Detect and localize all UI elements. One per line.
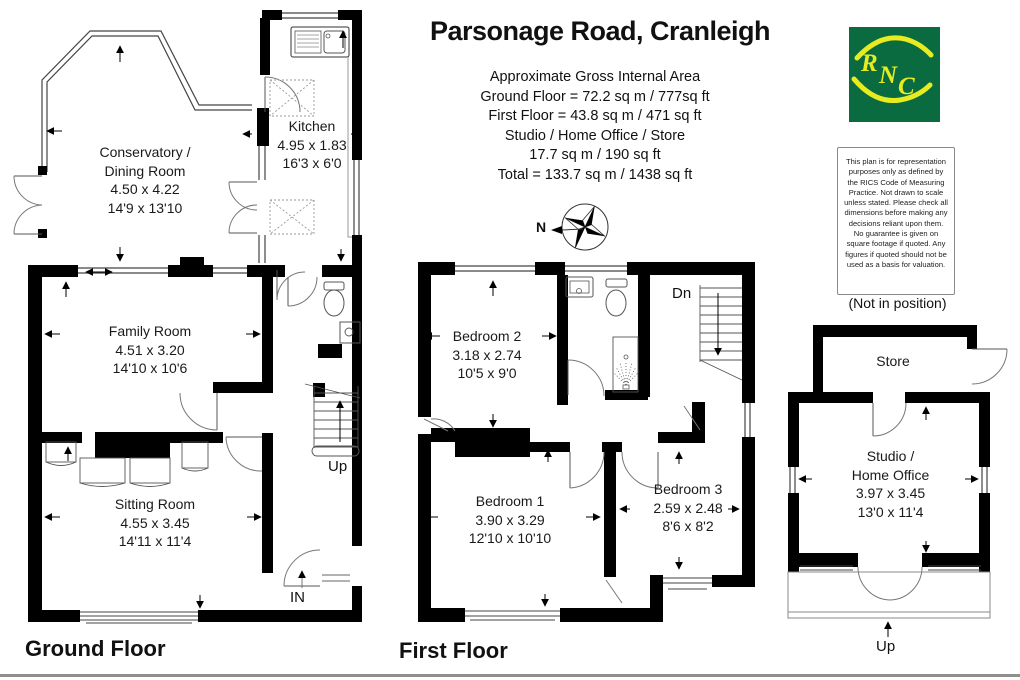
room-name: Home Office: [808, 466, 973, 485]
area-summary: Approximate Gross Internal Area Ground F…: [395, 68, 795, 185]
room-label-kitchen: Kitchen 4.95 x 1.83 16'3 x 6'0: [258, 117, 366, 173]
first-floor-stairs: [700, 285, 742, 380]
room-label-studio: Studio / Home Office 3.97 x 3.45 13'0 x …: [808, 447, 973, 521]
room-label-store: Store: [843, 352, 943, 371]
room-dims-metric: 3.18 x 2.74: [417, 346, 557, 365]
stairs-up-label-studio: Up: [876, 638, 895, 655]
room-label-family-room: Family Room 4.51 x 3.20 14'10 x 10'6: [70, 322, 230, 378]
room-name: Dining Room: [55, 162, 235, 181]
area-line: 17.7 sq m / 190 sq ft: [395, 146, 795, 166]
area-line: Approximate Gross Internal Area: [395, 68, 795, 88]
room-dims-metric: 4.95 x 1.83: [258, 136, 366, 155]
stairs-up-label-ground: Up: [328, 458, 347, 475]
logo-letter-c: C: [898, 73, 915, 100]
room-name: Kitchen: [258, 117, 366, 136]
ground-stairs: [305, 383, 360, 456]
room-name: Bedroom 2: [417, 327, 557, 346]
stairs-dn-label-first: Dn: [672, 285, 691, 302]
first-floor-title: First Floor: [399, 638, 508, 664]
logo-letter-n: N: [878, 62, 898, 89]
room-name: Bedroom 1: [430, 492, 590, 511]
room-name: Conservatory /: [55, 143, 235, 162]
room-dims-imperial: 10'5 x 9'0: [417, 364, 557, 383]
room-dims-imperial: 16'3 x 6'0: [258, 154, 366, 173]
area-line: First Floor = 43.8 sq m / 471 sq ft: [395, 107, 795, 127]
room-dims-metric: 4.50 x 4.22: [55, 180, 235, 199]
room-dims-imperial: 14'10 x 10'6: [70, 359, 230, 378]
room-label-bedroom3: Bedroom 3 2.59 x 2.48 8'6 x 8'2: [618, 480, 758, 536]
wc-fixtures: [277, 270, 360, 358]
floorplan-page: R N C Parsonage Road, Cranleigh Approxim…: [0, 0, 1020, 680]
area-line: Total = 133.7 sq m / 1438 sq ft: [395, 166, 795, 186]
room-name: Family Room: [70, 322, 230, 341]
room-dims-imperial: 14'9 x 13'10: [55, 199, 235, 218]
room-dims-imperial: 8'6 x 8'2: [618, 517, 758, 536]
room-label-bedroom1: Bedroom 1 3.90 x 3.29 12'10 x 10'10: [430, 492, 590, 548]
room-dims-metric: 3.90 x 3.29: [430, 511, 590, 530]
entrance-in-label: IN: [290, 589, 305, 606]
room-name: Sitting Room: [75, 495, 235, 514]
room-name: Store: [843, 352, 943, 371]
room-dims-imperial: 14'11 x 11'4: [75, 532, 235, 551]
room-label-bedroom2: Bedroom 2 3.18 x 2.74 10'5 x 9'0: [417, 327, 557, 383]
room-dims-metric: 2.59 x 2.48: [618, 499, 758, 518]
not-in-position-note: (Not in position): [795, 295, 1000, 311]
rnc-logo: R N C: [849, 27, 940, 122]
room-dims-imperial: 13'0 x 11'4: [808, 503, 973, 522]
bottom-divider: [0, 674, 1020, 677]
area-line: Studio / Home Office / Store: [395, 127, 795, 147]
logo-letter-r: R: [860, 50, 878, 77]
room-dims-metric: 3.97 x 3.45: [808, 484, 973, 503]
room-dims-metric: 4.55 x 3.45: [75, 514, 235, 533]
page-title: Parsonage Road, Cranleigh: [340, 16, 860, 47]
room-dims-imperial: 12'10 x 10'10: [430, 529, 590, 548]
room-dims-metric: 4.51 x 3.20: [70, 341, 230, 360]
room-name: Studio /: [808, 447, 973, 466]
bathroom-fixtures: [566, 277, 639, 392]
room-label-sitting-room: Sitting Room 4.55 x 3.45 14'11 x 11'4: [75, 495, 235, 551]
area-line: Ground Floor = 72.2 sq m / 777sq ft: [395, 88, 795, 108]
room-label-conservatory: Conservatory / Dining Room 4.50 x 4.22 1…: [55, 143, 235, 217]
first-floor-plan: [418, 262, 755, 622]
compass-rose: [551, 197, 615, 257]
compass-north-label: N: [536, 219, 556, 235]
room-name: Bedroom 3: [618, 480, 758, 499]
ground-floor-title: Ground Floor: [25, 636, 166, 662]
disclaimer-box: This plan is for representation purposes…: [837, 147, 955, 295]
